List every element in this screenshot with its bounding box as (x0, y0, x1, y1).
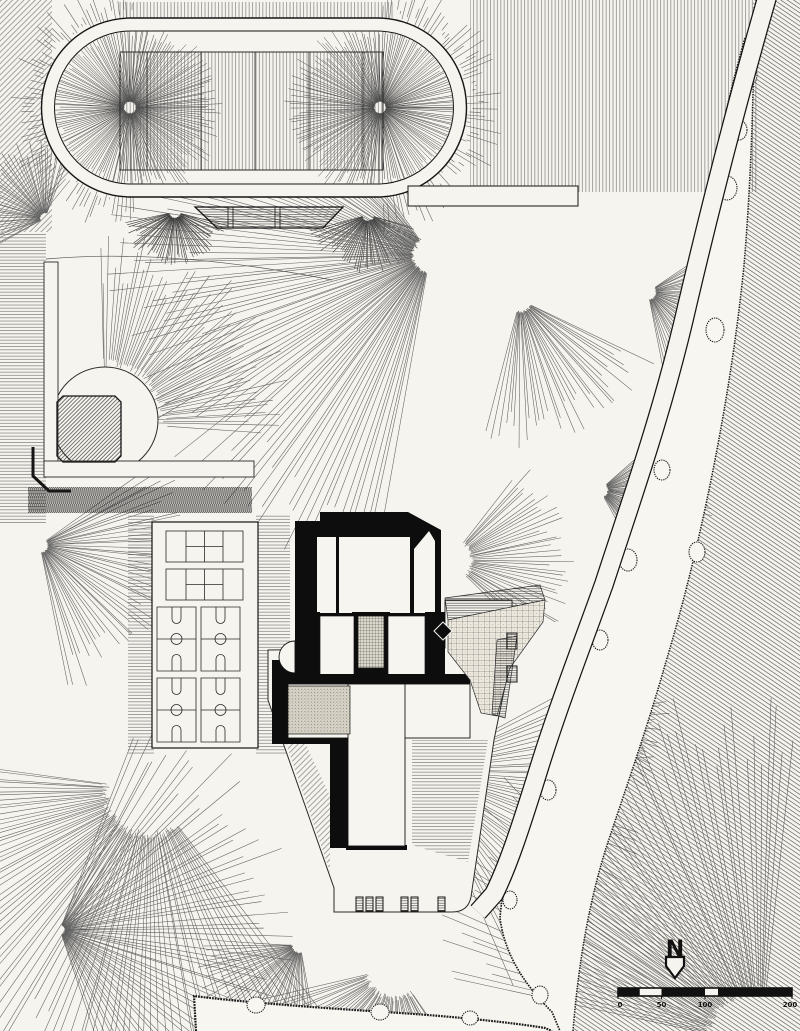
scale-label-50: 50 (657, 1001, 667, 1009)
small-structure (366, 897, 373, 911)
small-structure (376, 897, 383, 911)
shadow-cross-top-band (272, 674, 470, 684)
tree (532, 986, 548, 1004)
plaza-path-north (44, 262, 58, 472)
gray-roof-terrace (288, 686, 350, 734)
walkway-east-of-track (408, 186, 578, 206)
courts-enclosure (152, 522, 258, 748)
plaza-path-south (44, 461, 254, 477)
hatch-above-track (118, 2, 394, 18)
small-structure (411, 897, 418, 911)
site-plan-canvas: N 0 50 100 200 (0, 0, 800, 1031)
scale-label-200: 200 (783, 1001, 798, 1009)
grass-strip-west (128, 514, 154, 754)
gym-roof-plane-west (317, 537, 336, 613)
bleachers (195, 207, 343, 228)
tree (247, 997, 265, 1013)
running-track (38, 13, 469, 201)
cross-stem-roof (348, 684, 405, 846)
gym-roof-plane-center (339, 537, 410, 613)
scale-segment (718, 988, 792, 996)
scale-label-0: 0 (618, 1001, 623, 1009)
small-structure (356, 897, 363, 911)
plaza-bench (507, 666, 517, 682)
courtyard-paving (358, 616, 384, 668)
scale-label-100: 100 (698, 1001, 713, 1009)
wing-west-roof (320, 616, 354, 678)
site-plan-drawing: N 0 50 100 200 (0, 0, 800, 1031)
scale-segment (662, 988, 706, 996)
tree (371, 1004, 389, 1020)
hedge (28, 487, 252, 513)
tree (706, 318, 724, 342)
pavilion (57, 396, 121, 462)
tree (462, 1011, 478, 1025)
tree (654, 460, 670, 480)
small-structure (401, 897, 408, 911)
plaza-bench (507, 633, 517, 649)
wing-east-roof (388, 616, 425, 678)
courts-area (128, 514, 290, 754)
scale-segment (618, 988, 640, 996)
small-structure (438, 897, 445, 911)
shadow-stem-west (330, 744, 348, 848)
playing-field (120, 52, 383, 170)
shadow-west-column (295, 612, 320, 684)
tree (689, 542, 705, 562)
